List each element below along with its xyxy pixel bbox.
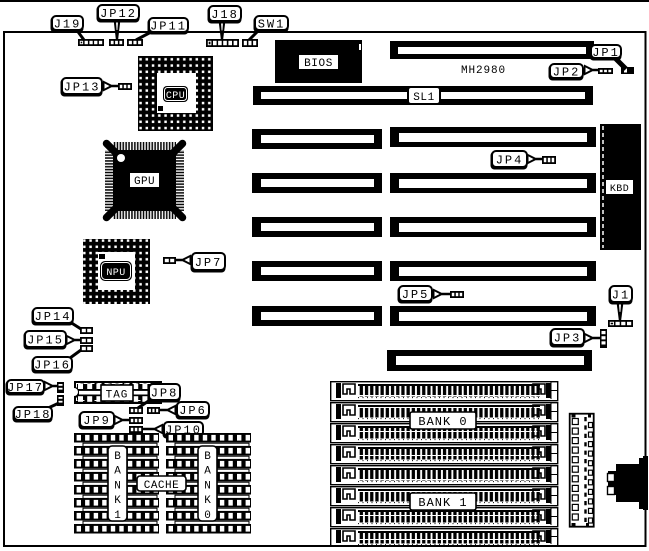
svg-text:TAG: TAG xyxy=(106,390,129,402)
svg-text:BANK 1: BANK 1 xyxy=(418,496,467,510)
svg-text:JP8: JP8 xyxy=(151,386,179,400)
svg-text:JP4: JP4 xyxy=(496,153,524,167)
svg-text:K: K xyxy=(204,495,211,507)
svg-text:B: B xyxy=(204,451,211,463)
svg-text:JP7: JP7 xyxy=(195,256,223,270)
svg-text:JP5: JP5 xyxy=(402,288,430,302)
svg-text:K: K xyxy=(114,495,121,507)
svg-text:GPU: GPU xyxy=(134,176,155,188)
svg-text:JP18: JP18 xyxy=(15,408,52,422)
svg-text:J19: J19 xyxy=(54,17,82,31)
svg-text:JP16: JP16 xyxy=(34,358,71,372)
svg-text:CPU: CPU xyxy=(166,91,185,102)
svg-text:B: B xyxy=(114,451,121,463)
svg-text:JP13: JP13 xyxy=(64,80,101,94)
svg-text:SL1: SL1 xyxy=(413,92,435,104)
svg-text:1: 1 xyxy=(114,510,121,522)
svg-text:JP12: JP12 xyxy=(100,7,137,21)
svg-text:MH2980: MH2980 xyxy=(461,65,506,77)
svg-text:JP3: JP3 xyxy=(554,331,582,345)
svg-text:JP6: JP6 xyxy=(179,404,207,418)
svg-text:JP17: JP17 xyxy=(7,381,44,395)
svg-text:JP15: JP15 xyxy=(27,333,64,347)
svg-text:N: N xyxy=(204,480,211,492)
svg-text:JP14: JP14 xyxy=(35,310,72,324)
svg-text:A: A xyxy=(204,466,211,478)
svg-text:BIOS: BIOS xyxy=(304,58,333,70)
svg-text:JP9: JP9 xyxy=(83,414,111,428)
svg-text:JP1: JP1 xyxy=(592,46,620,60)
svg-text:SW1: SW1 xyxy=(258,17,286,31)
svg-text:NPU: NPU xyxy=(106,268,125,279)
svg-text:JP2: JP2 xyxy=(553,65,581,79)
svg-text:J18: J18 xyxy=(211,8,239,22)
svg-text:BANK 0: BANK 0 xyxy=(418,415,467,429)
svg-text:A: A xyxy=(114,466,121,478)
svg-text:KBD: KBD xyxy=(610,184,629,195)
svg-text:JP11: JP11 xyxy=(150,19,187,33)
svg-text:0: 0 xyxy=(204,510,211,522)
svg-text:N: N xyxy=(114,480,121,492)
svg-text:CACHE: CACHE xyxy=(144,480,180,492)
svg-text:J1: J1 xyxy=(612,288,630,302)
